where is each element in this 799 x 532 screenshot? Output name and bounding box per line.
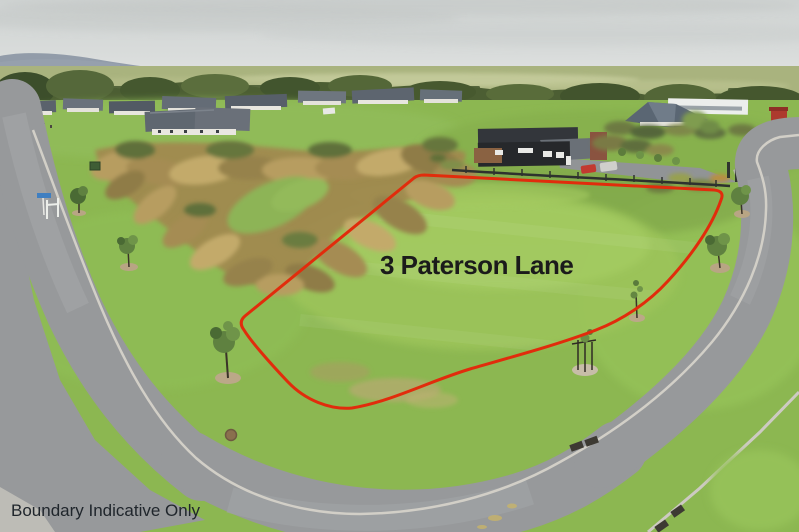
- foreground-house: [145, 107, 251, 135]
- manhole-cover: [226, 430, 237, 441]
- lot-label: 3 Paterson Lane: [380, 250, 573, 281]
- aerial-photo: 3 Paterson Lane Boundary Indicative Only: [0, 0, 799, 532]
- disclaimer-label: Boundary Indicative Only: [11, 501, 200, 521]
- utility-box: [90, 162, 100, 170]
